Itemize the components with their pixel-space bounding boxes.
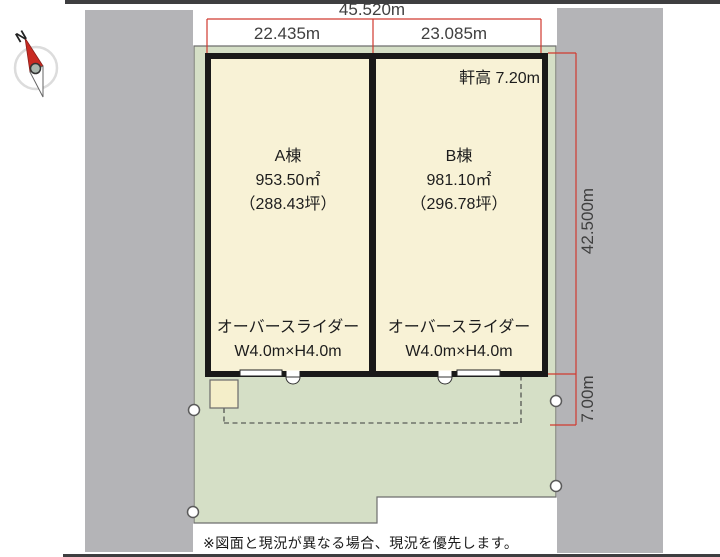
boundary-marker-left-upper	[189, 405, 200, 416]
building-a-door-info: オーバースライダー W4.0m×H4.0m	[207, 316, 369, 364]
building-b-info: B棟 981.10㎡ （296.78坪）	[376, 145, 542, 217]
dimension-building-a-width: 22.435m	[217, 24, 357, 44]
boundary-marker-left-lower	[188, 507, 199, 518]
building-a-door-type: オーバースライダー	[207, 316, 369, 340]
boundary-marker-right-upper	[551, 396, 562, 407]
door-gap-a	[287, 371, 300, 377]
building-a-area-m2: 953.50㎡	[207, 169, 369, 193]
boundary-marker-right-lower	[551, 481, 562, 492]
site-plan-drawing: N	[0, 0, 720, 557]
small-outbuilding	[210, 380, 238, 408]
building-b-door-size: W4.0m×H4.0m	[376, 340, 542, 364]
building-b-area-m2: 981.10㎡	[376, 169, 542, 193]
dimension-front-setback: 7.00m	[578, 339, 598, 459]
overslider-door-b	[457, 370, 500, 376]
building-a-area-tsubo: （288.43坪）	[207, 193, 369, 217]
dimension-depth: 42.500m	[578, 161, 598, 281]
building-a-name: A棟	[207, 145, 369, 169]
eave-height-label: 軒高 7.20m	[398, 64, 540, 88]
building-a-info: A棟 953.50㎡ （288.43坪）	[207, 145, 369, 217]
site-plan-canvas: N 45.520m 22.435m 23.085m 42.500m 7.00m …	[0, 0, 720, 557]
building-b-area-tsubo: （296.78坪）	[376, 193, 542, 217]
disclaimer-note: ※図面と現況が異なる場合、現況を優先します。	[203, 533, 518, 553]
building-b-door-type: オーバースライダー	[376, 316, 542, 340]
door-gap-b	[439, 371, 452, 377]
compass-hub	[31, 64, 41, 74]
building-b-door-info: オーバースライダー W4.0m×H4.0m	[376, 316, 542, 364]
compass-icon: N	[13, 27, 58, 97]
building-b-name: B棟	[376, 145, 542, 169]
dimension-building-b-width: 23.085m	[384, 24, 524, 44]
overslider-door-a	[240, 370, 282, 376]
building-a-door-size: W4.0m×H4.0m	[207, 340, 369, 364]
dimension-total-width: 45.520m	[302, 0, 442, 20]
